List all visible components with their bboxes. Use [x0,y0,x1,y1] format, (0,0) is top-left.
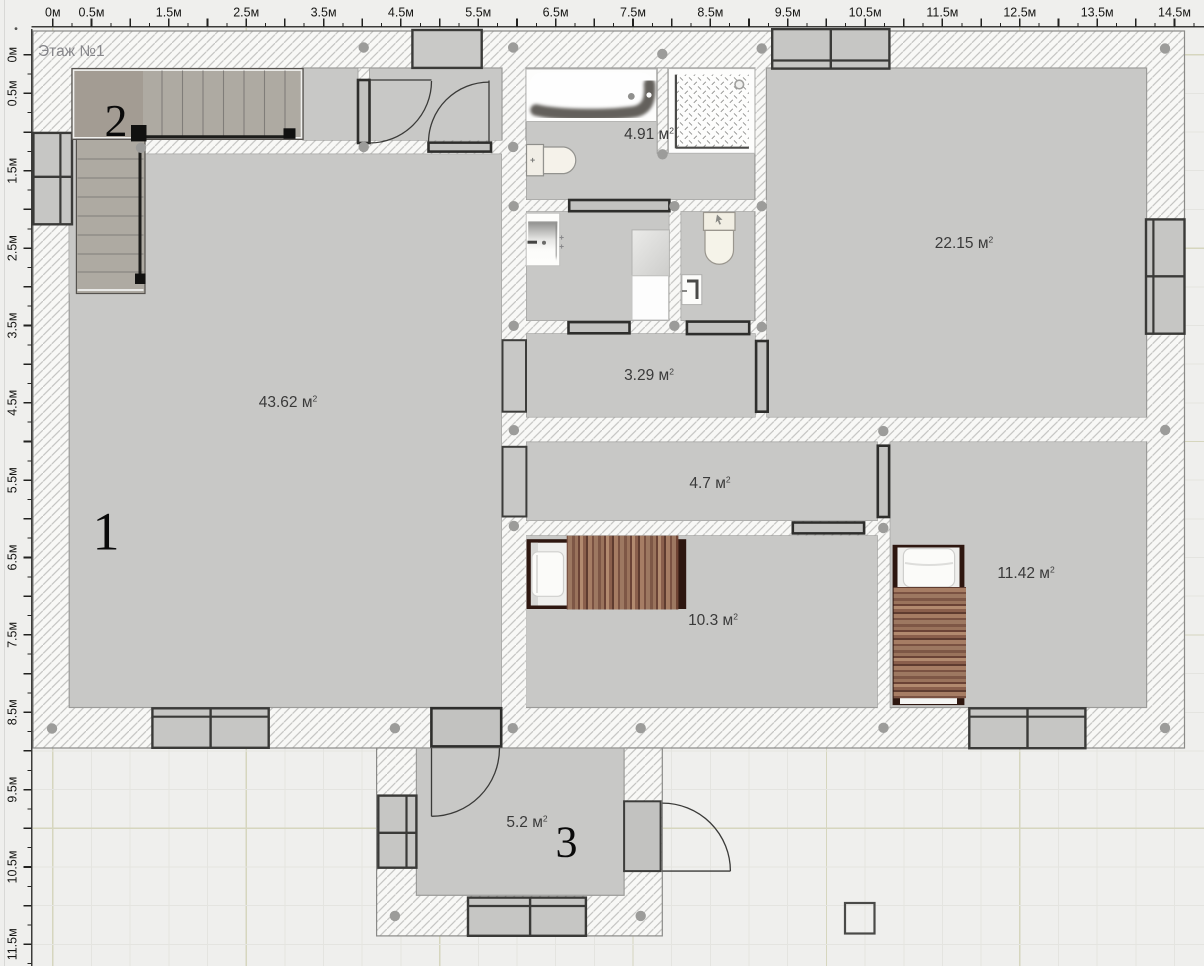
svg-text:4.91 м2: 4.91 м2 [624,126,674,144]
svg-text:Этаж №1: Этаж №1 [38,43,105,60]
svg-text:0м: 0м [6,47,20,63]
svg-text:12.5м: 12.5м [1003,6,1036,20]
svg-text:5.5м: 5.5м [465,6,491,20]
svg-text:10.3 м2: 10.3 м2 [688,612,738,630]
svg-text:0м: 0м [45,6,61,20]
svg-text:4.7 м2: 4.7 м2 [689,475,731,493]
svg-text:0.5м: 0.5м [6,80,20,106]
svg-text:3.5м: 3.5м [311,6,337,20]
svg-text:13.5м: 13.5м [1081,6,1114,20]
svg-text:3.29 м2: 3.29 м2 [624,367,674,385]
svg-text:1.5м: 1.5м [156,6,182,20]
svg-text:1: 1 [93,502,120,562]
svg-text:8.5м: 8.5м [6,699,20,725]
svg-text:11.5м: 11.5м [926,6,958,20]
svg-text:14.5м: 14.5м [1158,6,1191,20]
svg-text:7.5м: 7.5м [620,6,646,20]
svg-text:4.5м: 4.5м [388,6,414,20]
svg-text:10.5м: 10.5м [849,6,882,20]
svg-text:5.2 м2: 5.2 м2 [506,814,548,832]
svg-text:2.5м: 2.5м [233,6,259,20]
svg-text:22.15 м2: 22.15 м2 [935,235,994,253]
svg-text:1.5м: 1.5м [6,158,20,184]
svg-text:2.5м: 2.5м [6,235,20,261]
svg-text:0.5м: 0.5м [79,6,105,20]
svg-text:5.5м: 5.5м [6,467,20,493]
svg-text:11.5м: 11.5м [6,928,20,960]
svg-text:43.62 м2: 43.62 м2 [259,394,318,412]
svg-text:9.5м: 9.5м [775,6,801,20]
svg-text:7.5м: 7.5м [6,622,20,648]
svg-text:3: 3 [556,818,578,867]
svg-text:11.42 м2: 11.42 м2 [997,565,1055,583]
svg-text:6.5м: 6.5м [543,6,569,20]
svg-text:8.5м: 8.5м [697,6,723,20]
svg-text:3.5м: 3.5м [6,313,20,339]
svg-text:6.5м: 6.5м [6,545,20,571]
svg-text:2: 2 [105,95,128,146]
svg-text:4.5м: 4.5м [6,390,20,416]
svg-text:10.5м: 10.5м [6,851,20,884]
svg-text:9.5м: 9.5м [6,777,20,803]
